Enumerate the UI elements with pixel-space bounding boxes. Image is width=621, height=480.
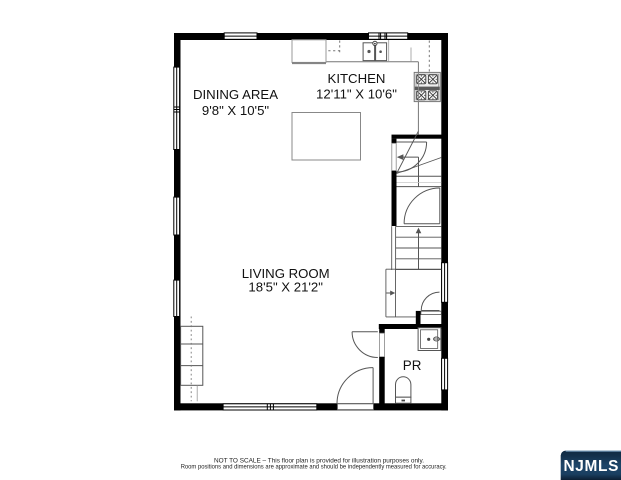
svg-text:PR: PR: [403, 358, 422, 373]
svg-text:NJMLS: NJMLS: [563, 458, 619, 475]
svg-text:Room positions and dimensions: Room positions and dimensions are approx…: [181, 463, 447, 470]
svg-text:12'11" X 10'6": 12'11" X 10'6": [316, 87, 397, 102]
svg-text:KITCHEN: KITCHEN: [328, 71, 386, 86]
svg-text:18'5" X 21'2": 18'5" X 21'2": [248, 279, 323, 294]
svg-text:9'8" X 10'5": 9'8" X 10'5": [202, 103, 270, 118]
svg-text:DINING AREA: DINING AREA: [193, 87, 278, 102]
